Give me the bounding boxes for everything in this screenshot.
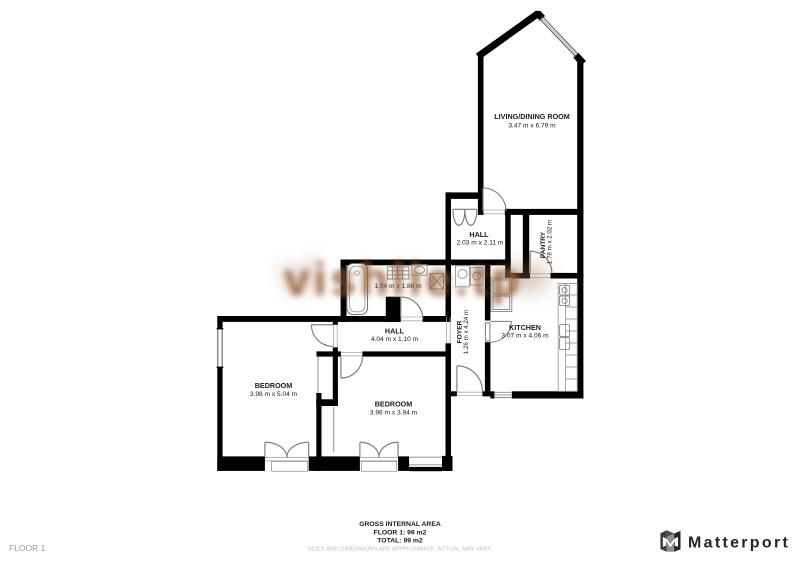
svg-text:HALL: HALL xyxy=(385,327,405,336)
svg-text:FLOOR 1: 99 m2: FLOOR 1: 99 m2 xyxy=(374,530,427,537)
svg-text:BEDROOM: BEDROOM xyxy=(375,400,413,409)
svg-text:4.04 m x 1.10 m: 4.04 m x 1.10 m xyxy=(371,336,419,343)
svg-text:HALL: HALL xyxy=(469,230,489,239)
svg-text:TOTAL: 99 m2: TOTAL: 99 m2 xyxy=(377,538,423,545)
svg-text:FLOOR 1: FLOOR 1 xyxy=(9,543,46,553)
svg-text:3.47 m x 6.79 m: 3.47 m x 6.79 m xyxy=(508,123,556,130)
svg-text:Matterport: Matterport xyxy=(688,535,790,552)
svg-text:2.03 m x 2.11 m: 2.03 m x 2.11 m xyxy=(457,240,504,247)
svg-text:LIVING/DINING ROOM: LIVING/DINING ROOM xyxy=(494,112,569,121)
svg-text:3.96 m x 3.94 m: 3.96 m x 3.94 m xyxy=(370,410,418,417)
svg-text:3.07 m x 4.06 m: 3.07 m x 4.06 m xyxy=(501,333,549,340)
svg-text:BEDROOM: BEDROOM xyxy=(255,381,293,390)
svg-text:3.98 m x 5.04 m: 3.98 m x 5.04 m xyxy=(250,391,298,398)
svg-text:SIZES AND DIMENSIONS ARE APPRO: SIZES AND DIMENSIONS ARE APPROXIMATE, AC… xyxy=(308,547,493,553)
svg-text:1.26 m x 4.24 m: 1.26 m x 4.24 m xyxy=(463,310,470,354)
svg-text:1.78 m x 2.02 m: 1.78 m x 2.02 m xyxy=(547,220,554,264)
svg-text:GROSS INTERNAL AREA: GROSS INTERNAL AREA xyxy=(359,521,441,528)
svg-text:KITCHEN: KITCHEN xyxy=(509,323,541,332)
